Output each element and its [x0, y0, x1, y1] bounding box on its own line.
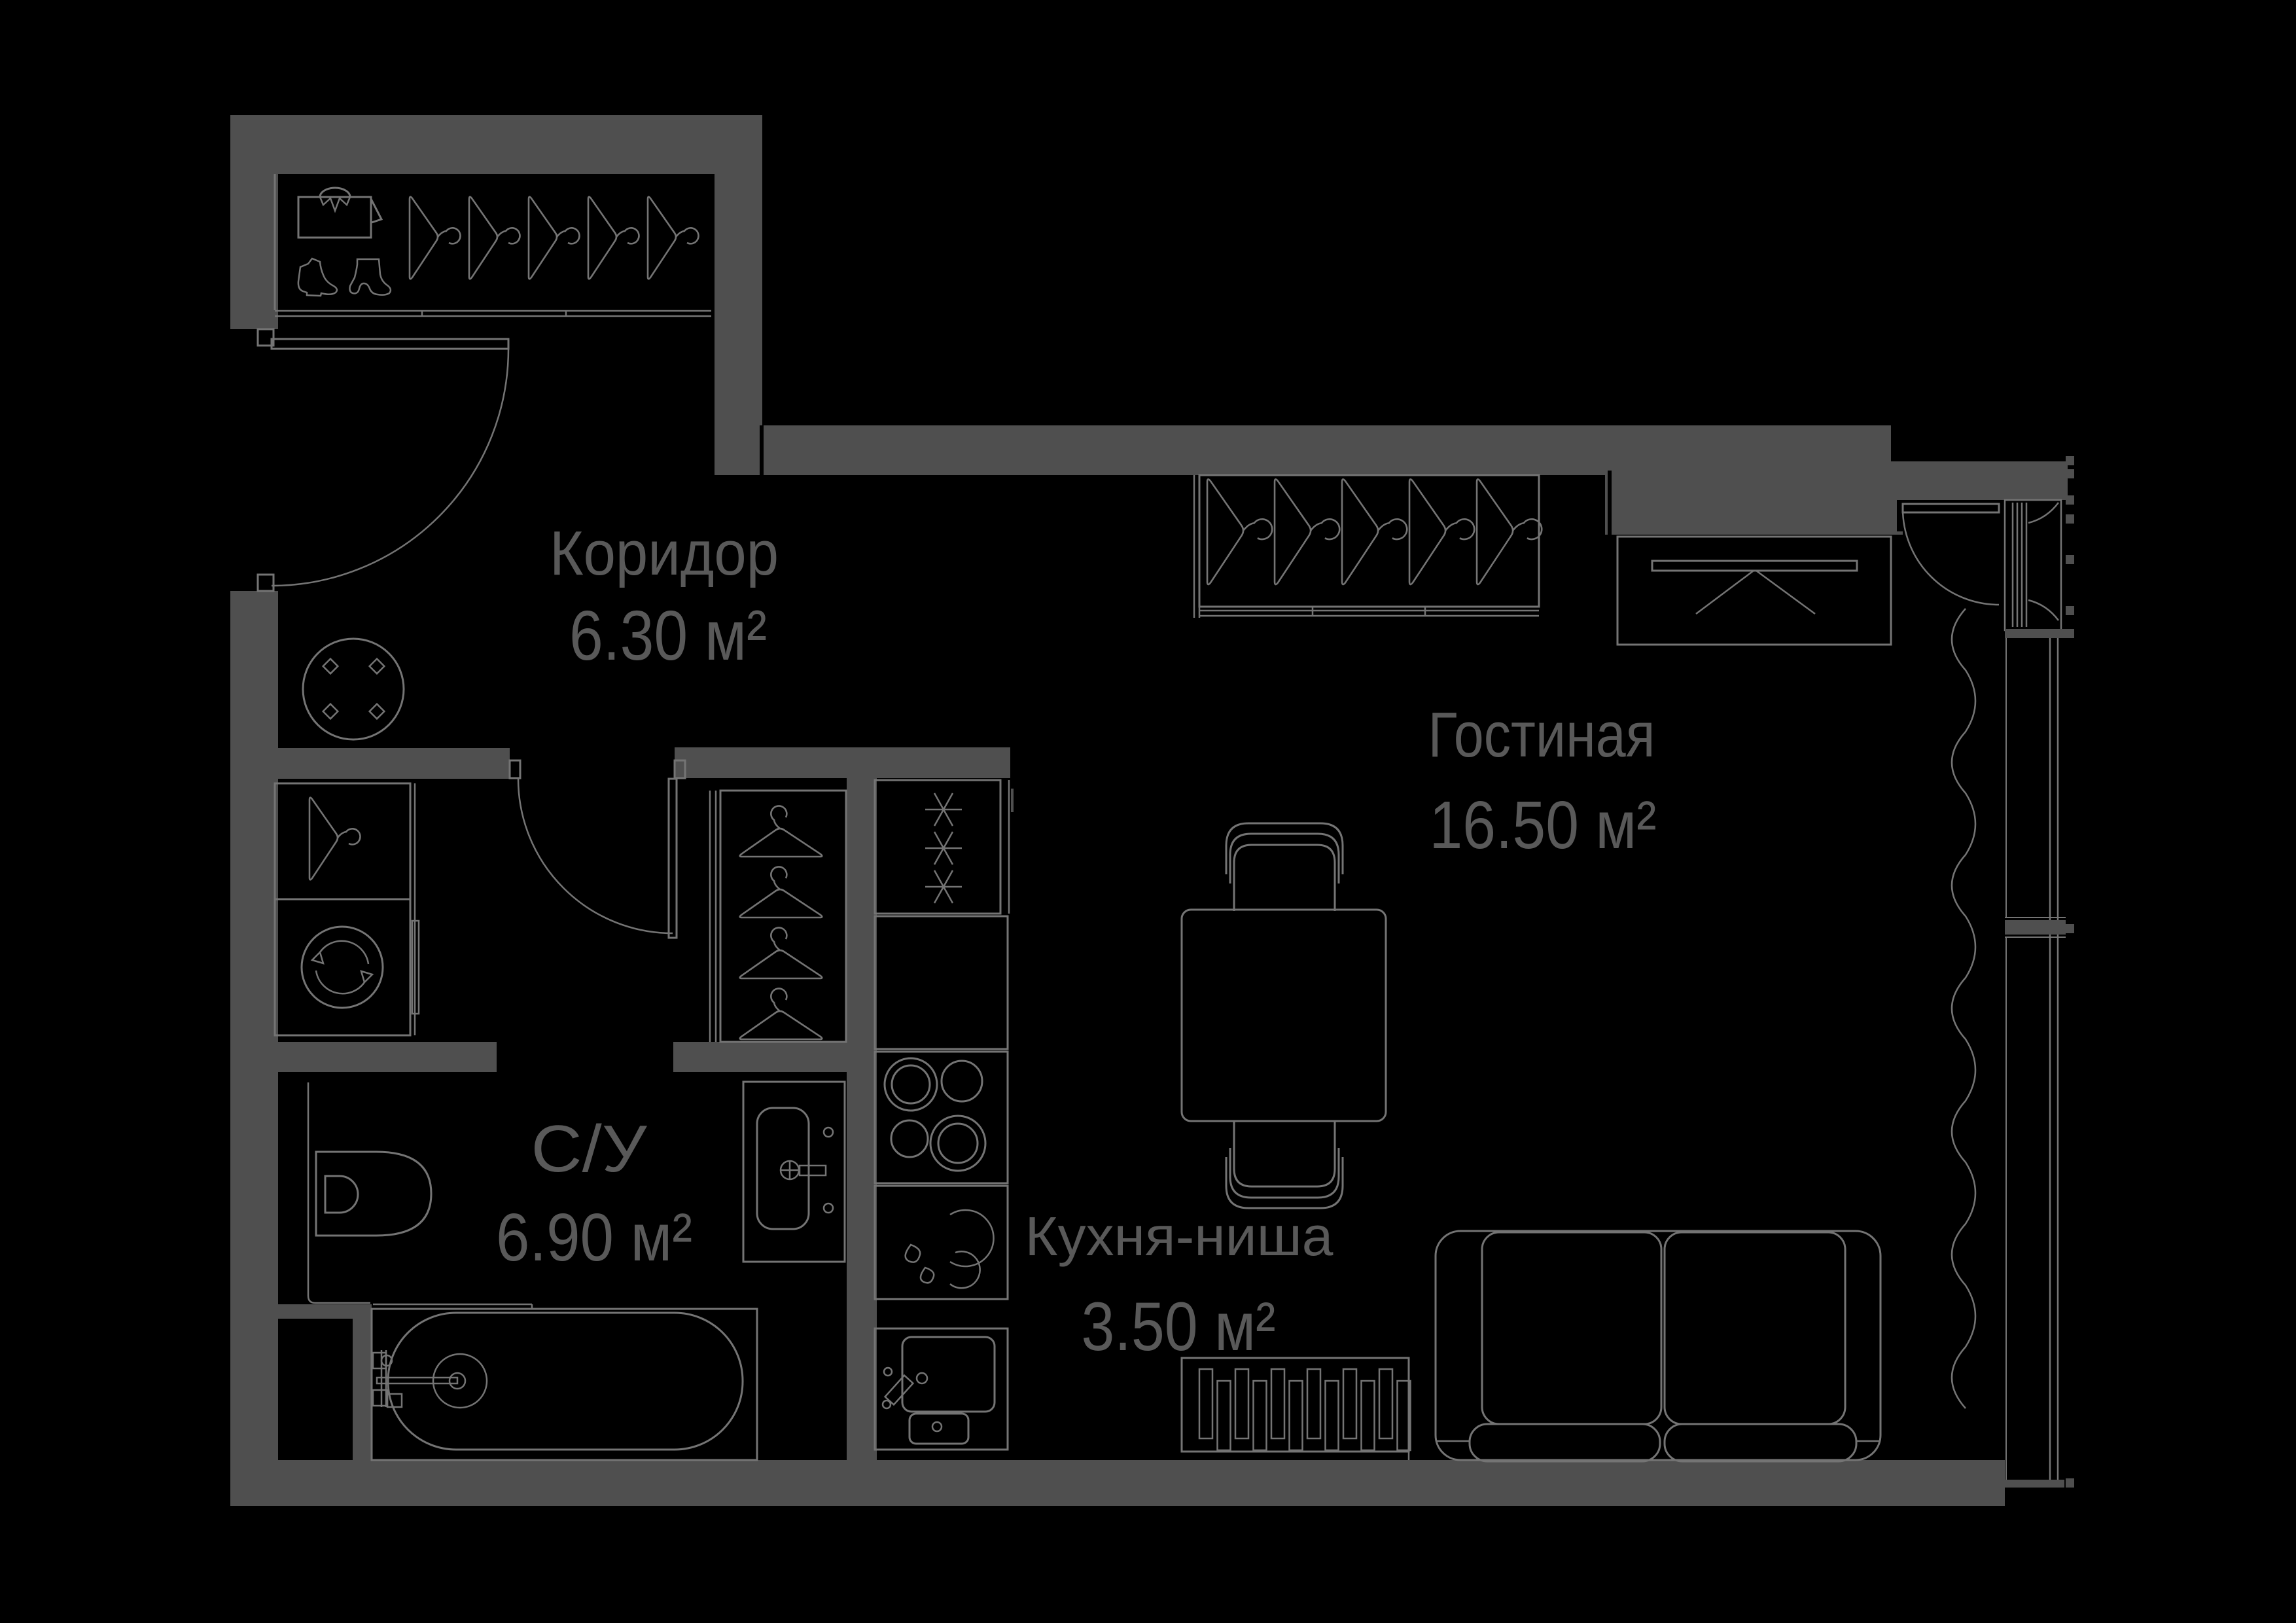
svg-text:16.50 м²: 16.50 м² — [1430, 787, 1657, 863]
svg-text:6.30 м²: 6.30 м² — [569, 596, 767, 675]
svg-text:Коридор: Коридор — [550, 518, 779, 588]
svg-text:6.90 м²: 6.90 м² — [496, 1200, 692, 1275]
svg-text:Кухня-ниша: Кухня-ниша — [1025, 1205, 1333, 1267]
svg-text:3.50 м²: 3.50 м² — [1082, 1289, 1276, 1365]
svg-text:С/У: С/У — [531, 1113, 648, 1186]
svg-text:Гостиная: Гостиная — [1428, 699, 1655, 770]
